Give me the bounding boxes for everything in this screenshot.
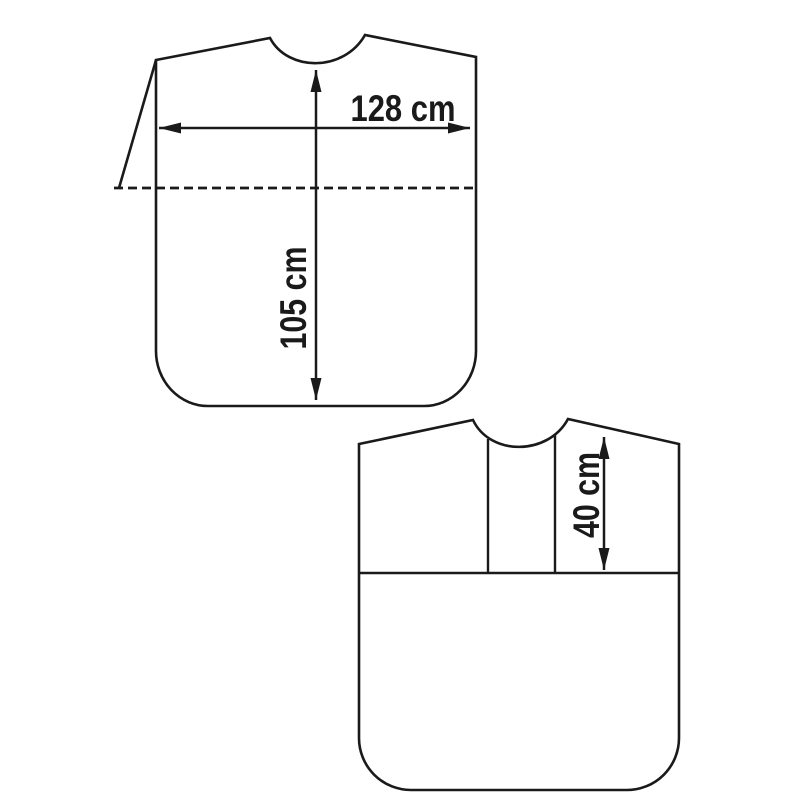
yoke-depth-measurement: 40 cm: [566, 437, 610, 570]
upper-garment-piece: 128 cm 105 cm: [114, 35, 476, 406]
lower-piece-outline: [359, 419, 679, 790]
width-arrowhead-left-icon: [159, 123, 181, 134]
length-measurement: 105 cm: [273, 70, 322, 400]
length-measurement-label: 105 cm: [273, 247, 314, 350]
width-measurement-label: 128 cm: [351, 88, 456, 129]
yoke-arrowhead-bottom-icon: [599, 548, 610, 570]
length-arrowhead-bottom-icon: [311, 378, 322, 400]
length-arrowhead-top-icon: [311, 70, 322, 92]
diagram-canvas: 128 cm 105 cm 40 cm: [0, 0, 800, 800]
lower-garment-piece: 40 cm: [359, 419, 679, 790]
upper-piece-side-flap-line: [119, 60, 156, 188]
yoke-measurement-label: 40 cm: [566, 452, 607, 538]
width-measurement: 128 cm: [159, 88, 470, 134]
garment-pattern-drawing: 128 cm 105 cm 40 cm: [0, 0, 800, 800]
